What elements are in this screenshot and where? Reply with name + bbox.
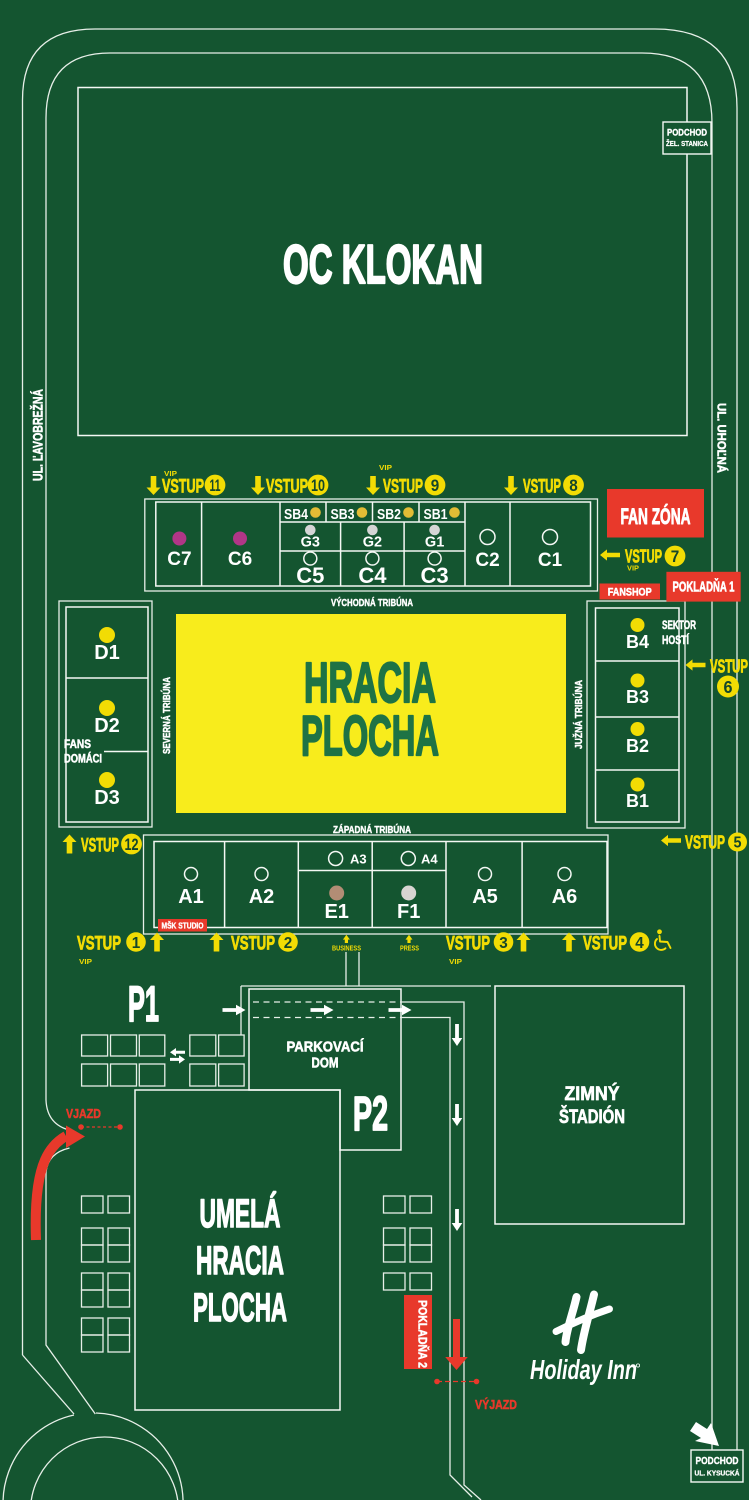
svg-text:VSTUP: VSTUP (383, 477, 423, 498)
svg-text:4: 4 (635, 935, 644, 952)
svg-text:D3: D3 (94, 787, 120, 809)
svg-text:C1: C1 (538, 550, 563, 571)
svg-text:ZIMNÝ: ZIMNÝ (565, 1083, 620, 1105)
svg-text:C3: C3 (421, 563, 449, 588)
svg-text:P2: P2 (353, 1088, 388, 1141)
svg-text:G1: G1 (425, 535, 444, 551)
svg-text:B3: B3 (626, 687, 649, 707)
svg-text:B1: B1 (626, 791, 649, 811)
svg-text:VSTUP: VSTUP (231, 934, 275, 955)
svg-text:9: 9 (431, 477, 440, 495)
svg-text:E1: E1 (324, 901, 348, 923)
svg-text:ŽEL. STANICA: ŽEL. STANICA (666, 139, 708, 148)
svg-text:ŠTADIÓN: ŠTADIÓN (559, 1106, 625, 1128)
svg-text:A4: A4 (421, 852, 438, 867)
svg-text:VIP: VIP (379, 465, 392, 472)
svg-text:C6: C6 (228, 549, 252, 570)
svg-text:G2: G2 (363, 535, 382, 551)
svg-text:8: 8 (569, 477, 578, 495)
svg-text:SB2: SB2 (377, 507, 401, 523)
svg-text:F1: F1 (397, 901, 420, 923)
svg-text:P1: P1 (128, 976, 159, 1032)
svg-text:DOM: DOM (312, 1055, 339, 1072)
svg-text:VSTUP: VSTUP (81, 836, 119, 857)
svg-text:Holiday Inn: Holiday Inn (530, 1354, 637, 1385)
svg-text:FANSHOP: FANSHOP (608, 587, 652, 599)
svg-text:SEKTOR: SEKTOR (662, 620, 696, 632)
svg-text:PARKOVACÍ: PARKOVACÍ (287, 1039, 365, 1056)
svg-text:A5: A5 (472, 886, 498, 908)
svg-text:VSTUP: VSTUP (710, 657, 748, 677)
svg-text:VSTUP: VSTUP (77, 934, 121, 955)
svg-text:SB1: SB1 (424, 507, 448, 523)
svg-text:VSTUP: VSTUP (446, 934, 490, 955)
svg-text:SEVERNÁ TRIBÚNA: SEVERNÁ TRIBÚNA (160, 677, 173, 754)
svg-text:VSTUP: VSTUP (266, 477, 308, 498)
svg-text:DOMÁCI: DOMÁCI (64, 753, 102, 766)
svg-text:VÝJAZD: VÝJAZD (475, 1397, 517, 1412)
svg-text:A2: A2 (249, 886, 275, 908)
svg-text:ZÁPADNÁ TRIBÚNA: ZÁPADNÁ TRIBÚNA (333, 823, 411, 836)
svg-text:POKLADŇA 2: POKLADŇA 2 (416, 1300, 431, 1368)
svg-text:1: 1 (132, 935, 141, 952)
svg-text:11: 11 (210, 477, 221, 495)
svg-text:VIP: VIP (627, 566, 639, 573)
svg-text:HOSTÍ: HOSTÍ (662, 634, 690, 647)
svg-text:UMELÁ: UMELÁ (200, 1191, 281, 1236)
svg-text:C2: C2 (475, 550, 499, 571)
svg-text:VSTUP: VSTUP (523, 477, 561, 498)
svg-text:HRACIA: HRACIA (196, 1239, 284, 1283)
svg-text:FAN ZÓNA: FAN ZÓNA (621, 504, 691, 529)
svg-text:PRESS: PRESS (400, 944, 419, 953)
svg-text:5: 5 (734, 835, 742, 852)
svg-text:BUSINESS: BUSINESS (332, 944, 361, 953)
svg-text:C5: C5 (296, 563, 324, 588)
svg-text:3: 3 (499, 935, 508, 952)
svg-text:PODCHOD: PODCHOD (667, 128, 707, 139)
svg-text:6: 6 (724, 677, 733, 697)
svg-text:D1: D1 (94, 642, 120, 664)
svg-text:VSTUP: VSTUP (162, 477, 204, 498)
svg-text:VIP: VIP (449, 959, 462, 966)
svg-text:PLOCHA: PLOCHA (193, 1286, 287, 1330)
svg-text:VÝCHODNÁ TRIBÚNA: VÝCHODNÁ TRIBÚNA (331, 596, 413, 609)
svg-text:VSTUP: VSTUP (685, 833, 725, 853)
svg-text:A1: A1 (178, 886, 204, 908)
svg-text:C7: C7 (167, 549, 191, 570)
svg-text:G3: G3 (301, 535, 320, 551)
svg-text:FANS: FANS (64, 739, 91, 751)
svg-text:OC KLOKAN: OC KLOKAN (283, 233, 483, 295)
svg-text:PODCHOD: PODCHOD (696, 1456, 739, 1467)
svg-text:POKLADŇA 1: POKLADŇA 1 (673, 578, 735, 596)
svg-text:12: 12 (125, 836, 139, 854)
svg-text:MŠK STUDIO: MŠK STUDIO (162, 920, 204, 931)
svg-text:UL. ĽAVOBREŽNÁ: UL. ĽAVOBREŽNÁ (29, 389, 46, 481)
svg-text:SB4: SB4 (284, 507, 308, 523)
svg-text:VJAZD: VJAZD (66, 1106, 101, 1121)
svg-text:10: 10 (311, 477, 325, 495)
svg-text:D2: D2 (94, 715, 120, 737)
svg-text:SB3: SB3 (331, 507, 355, 523)
svg-text:UL. KYSUCKÁ: UL. KYSUCKÁ (695, 1469, 740, 1478)
svg-text:B2: B2 (626, 736, 649, 756)
svg-text:C4: C4 (358, 563, 387, 588)
svg-text:VSTUP: VSTUP (625, 547, 662, 567)
svg-text:A3: A3 (350, 852, 367, 867)
svg-text:2: 2 (284, 935, 293, 952)
svg-text:VSTUP: VSTUP (583, 934, 627, 955)
svg-text:JUŽNÁ TRIBÚNA: JUŽNÁ TRIBÚNA (572, 680, 585, 749)
svg-text:UL. UHOĽNÁ: UL. UHOĽNÁ (715, 403, 730, 473)
svg-text:PLOCHA: PLOCHA (301, 704, 439, 768)
svg-text:A6: A6 (552, 886, 578, 908)
svg-text:B4: B4 (626, 632, 649, 652)
svg-text:VIP: VIP (79, 959, 92, 966)
svg-text:7: 7 (671, 548, 680, 566)
